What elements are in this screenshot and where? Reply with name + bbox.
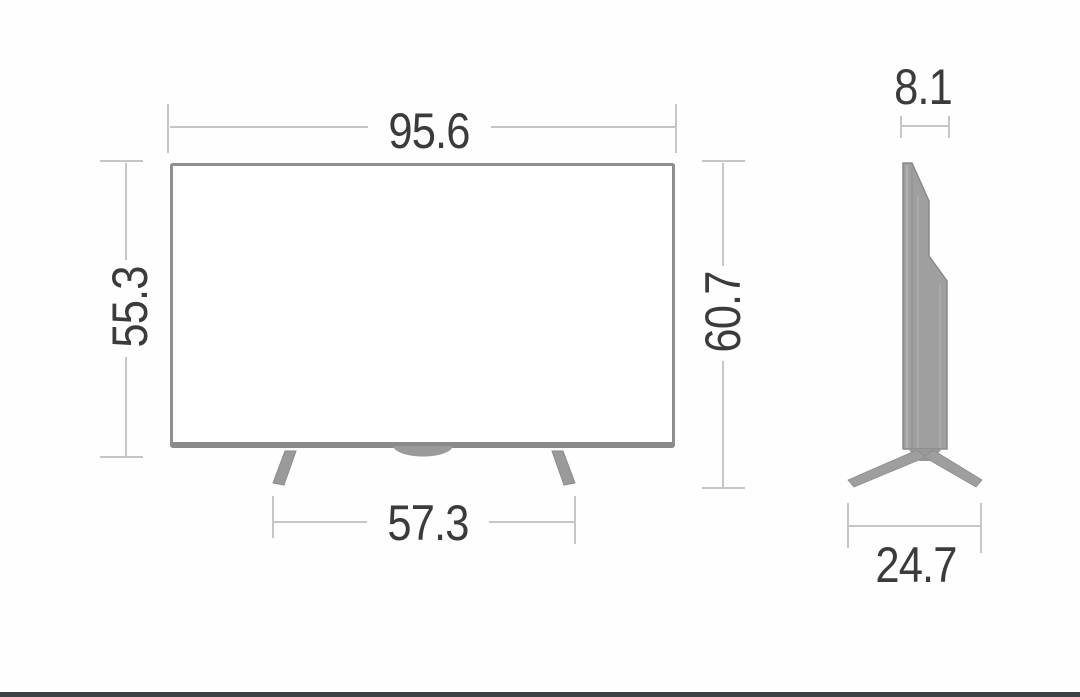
width-dim-label: 95.6 (388, 106, 469, 156)
panel-height-dim-tick-bottom (100, 456, 143, 458)
width-dim-line-right (491, 126, 676, 128)
total-height-dim-tick-bottom (702, 487, 745, 489)
base-depth-dim-tick-right (980, 503, 982, 553)
front-view-right-foot (552, 451, 575, 485)
screenshot-bottom-bar (0, 692, 1080, 697)
panel-height-dim-tick-top (100, 160, 143, 162)
width-dim-tick-left (167, 104, 169, 153)
base-depth-dim-label: 24.7 (875, 540, 956, 590)
panel-height-dim-line-top (125, 163, 127, 260)
total-height-dim-tick-top (702, 160, 745, 162)
width-dim-line-left (170, 126, 368, 128)
stand-width-dim-label: 57.3 (387, 498, 468, 548)
stand-width-dim-line-left (274, 521, 367, 523)
front-view-left-foot (273, 451, 296, 485)
panel-height-dim-label: 55.3 (105, 266, 155, 347)
side-view-left-leg (848, 450, 926, 487)
top-depth-dim-tick-right (948, 116, 950, 138)
top-depth-dim-tick-left (900, 116, 902, 138)
total-height-dim-line-bottom (722, 361, 724, 487)
base-depth-dim-line (848, 525, 982, 527)
top-depth-dim-line (901, 125, 950, 127)
total-height-dim-label: 60.7 (698, 271, 748, 352)
stand-width-dim-tick-left (272, 496, 274, 538)
side-view-right-leg (924, 450, 982, 487)
stand-width-dim-line-right (489, 521, 574, 523)
width-dim-tick-right (675, 104, 677, 153)
top-depth-dim-label: 8.1 (894, 62, 952, 112)
tv-dimension-diagram: 95.6 55.3 60.7 57.3 8.1 24.7 (0, 0, 1080, 697)
front-view-center-mount (393, 446, 453, 457)
panel-height-dim-line-bottom (125, 357, 127, 456)
stand-width-dim-tick-right (574, 496, 576, 544)
total-height-dim-line-top (722, 163, 724, 266)
